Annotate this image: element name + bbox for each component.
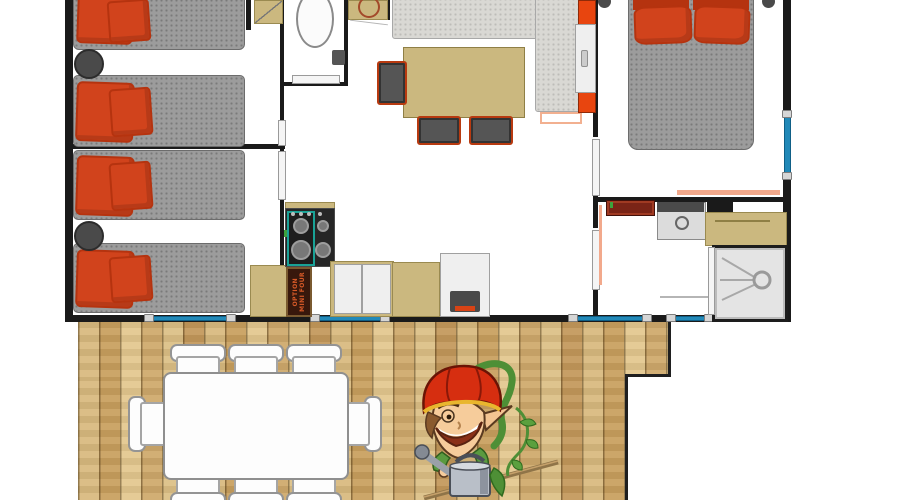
window-terrace-1 [152, 316, 226, 321]
hob-burner [315, 242, 331, 258]
hall-wardrobe [254, 0, 283, 24]
bathroom-column [707, 198, 733, 213]
window-hinge [782, 172, 792, 180]
cabinet-front [334, 264, 362, 314]
wall-accent [599, 205, 602, 285]
dining-chair [417, 116, 461, 145]
outdoor-table [163, 372, 349, 480]
bedroom1-door [278, 120, 286, 146]
wc-cistern [332, 50, 345, 65]
bed-pillow [108, 87, 153, 138]
window-hinge [666, 314, 676, 322]
bathroom-counter [705, 212, 787, 246]
bedside-stool [74, 49, 104, 79]
door-swing [350, 20, 388, 26]
bed-pillow [108, 255, 153, 304]
hob-knob [291, 212, 295, 216]
master-bedroom-door [592, 139, 600, 196]
bed-pillow [693, 5, 750, 45]
oven-label-line1: OPTION [293, 278, 299, 306]
shower-symbol [716, 250, 778, 312]
bathroom-left-wall-b [593, 290, 598, 315]
outdoor-chair-back [228, 492, 284, 500]
floor-plan: OPTION MINI FOUR [0, 0, 900, 500]
window-hinge [144, 314, 154, 322]
oven-label-line2: MINI FOUR [300, 272, 306, 312]
left-wall [65, 0, 73, 322]
dining-chair [377, 61, 407, 105]
terrace-step-edge [625, 374, 671, 377]
wall-accent [677, 190, 780, 195]
bed-knob [762, 0, 775, 8]
tall-cabinet-bottom [578, 91, 596, 113]
terrace-deck-upper [78, 320, 671, 377]
hob-burner [317, 220, 329, 232]
bedside-stool [74, 221, 104, 251]
washbasin-top [657, 202, 704, 212]
outdoor-chair-back [286, 492, 342, 500]
kitchen-cabinet [392, 262, 440, 317]
kitchen-green-marker [284, 230, 287, 237]
counter-line [715, 220, 770, 222]
bed-pillow [633, 5, 692, 45]
window-hinge [782, 110, 792, 118]
right-wall-upper [783, 0, 791, 117]
kitchen-counter-left [250, 265, 289, 317]
dining-chair [469, 116, 513, 145]
tall-cabinet-top [578, 0, 596, 26]
window-hinge [568, 314, 578, 322]
bedroom2-door [278, 151, 286, 200]
fridge-handle [455, 306, 475, 311]
hob-burner [291, 240, 311, 260]
mini-oven-option: OPTION MINI FOUR [286, 267, 312, 317]
bed-pillow [107, 0, 152, 43]
outdoor-chair-back [170, 492, 226, 500]
wc-door [292, 75, 340, 84]
hob-burner [293, 218, 309, 234]
window-right-wall [784, 117, 791, 173]
hob-knob [318, 212, 322, 216]
bedroom-corner-wall [246, 0, 251, 30]
shower-door [708, 247, 715, 315]
mascot-illustration [398, 356, 563, 500]
dining-table [403, 47, 525, 118]
cabinet-handle [581, 50, 588, 67]
hob-knob [307, 212, 311, 216]
window-hinge [642, 314, 652, 322]
window-hinge [226, 314, 236, 322]
window-terrace-3 [576, 316, 642, 321]
bed-knob [598, 0, 611, 8]
door-swing [660, 296, 712, 298]
bed-pillow [108, 161, 153, 212]
leaf [490, 468, 505, 496]
bench-accent [540, 112, 582, 124]
window-bathroom [673, 316, 705, 321]
toilet [296, 0, 334, 48]
radiator-marker [610, 202, 613, 208]
cabinet-front [362, 264, 391, 314]
towel-radiator [606, 200, 655, 216]
washbasin-faucet [675, 216, 689, 230]
hob-knob [299, 212, 303, 216]
bathroom-left-wall-a [593, 202, 598, 228]
corner-bench-top [392, 0, 539, 39]
